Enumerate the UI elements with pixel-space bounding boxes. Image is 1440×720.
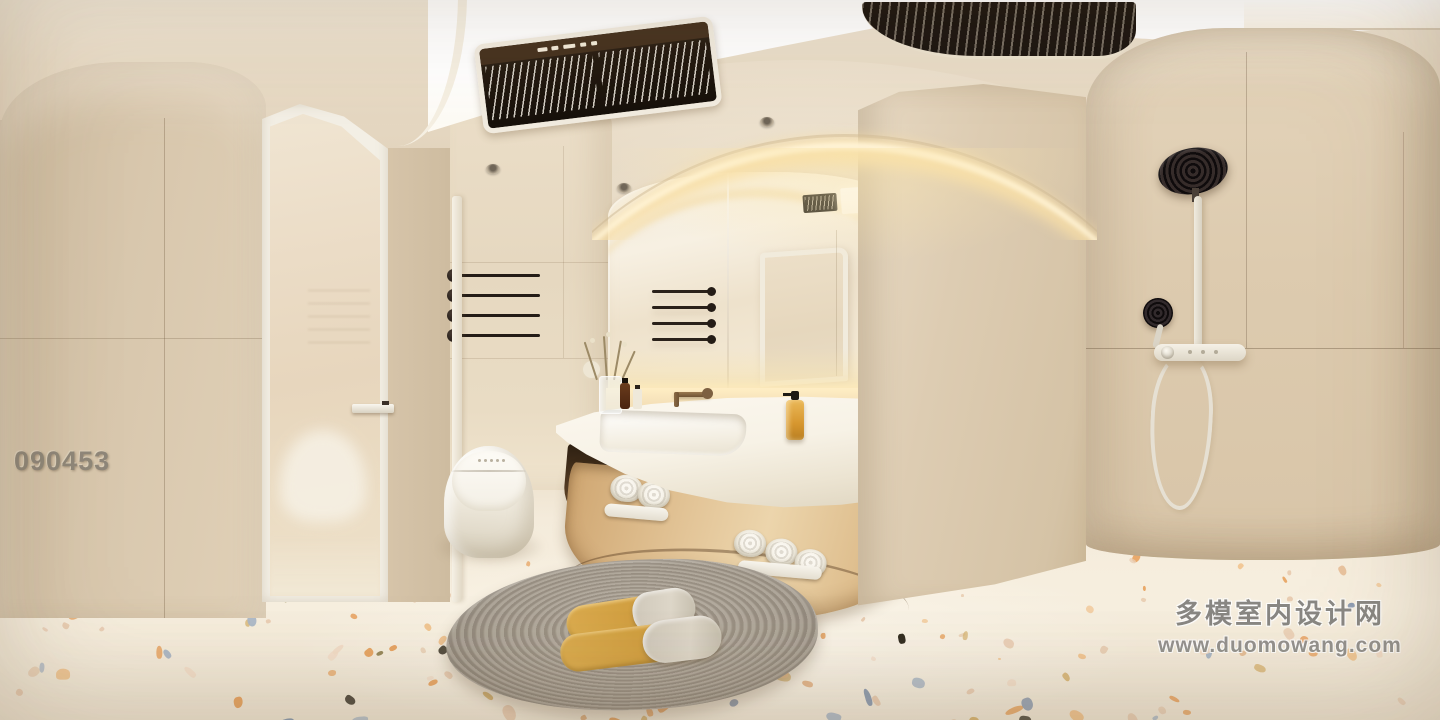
terrazzo-chip (233, 696, 244, 708)
display-glyph (591, 41, 597, 46)
towel-bar (449, 334, 540, 337)
shower-button (1201, 350, 1205, 354)
terrazzo-chip (38, 662, 44, 672)
wall-beside-door (388, 148, 450, 602)
wall-seam (164, 118, 165, 618)
terrazzo-chip (1376, 582, 1382, 588)
toilet-buttons (478, 459, 505, 462)
terrazzo-chip (1168, 695, 1179, 703)
small-bottle (633, 389, 642, 409)
terrazzo-chip (278, 716, 296, 720)
door-handle (352, 404, 394, 413)
terrazzo-chip (56, 669, 70, 680)
faucet-escutcheon (702, 388, 713, 399)
terrazzo-chip (1157, 705, 1166, 715)
wall-seam (1403, 132, 1404, 348)
display-glyph (580, 42, 586, 47)
vent-grille (485, 54, 599, 121)
tile-seam (450, 358, 612, 359)
terrazzo-chip (1396, 697, 1406, 707)
watermark-site-url: www.duomowang.com (1150, 633, 1410, 658)
terrazzo-chip (156, 646, 162, 659)
left-wall-panel: 090453 (0, 62, 266, 618)
terrazzo-chip (1183, 709, 1192, 714)
terrazzo-chip (1151, 715, 1159, 720)
flower-leaf (590, 338, 595, 343)
vent-grille (598, 40, 712, 107)
vent-grille (862, 2, 1136, 56)
terrazzo-chip (162, 648, 173, 660)
flower-leaf (622, 342, 627, 347)
terrazzo-chip (351, 716, 368, 720)
terrazzo-chip (15, 688, 24, 697)
towel-bar (449, 294, 540, 297)
terrazzo-chip (1237, 562, 1245, 570)
watermark-site-name: 多模室内设计网 (1150, 598, 1410, 630)
terrazzo-chip (1143, 586, 1146, 591)
tile-seam (563, 146, 564, 358)
mirror-reflection-towel-bar (652, 338, 714, 341)
tile-seam (450, 262, 612, 263)
terrazzo-chip (1007, 679, 1016, 687)
bathroom-panorama: 090453 (0, 0, 1440, 720)
terrazzo-chip (265, 619, 271, 625)
terrazzo-chip (1288, 570, 1292, 575)
flower-leaf (606, 332, 611, 337)
bathtub-silhouette (280, 430, 366, 522)
glass-reflection-lines (308, 290, 370, 346)
terrazzo-chip (1126, 711, 1140, 720)
photo-id-label: 090453 (14, 446, 110, 477)
display-glyph (551, 46, 558, 51)
recessed-downlight (486, 164, 500, 174)
toilet-lid-seam (452, 470, 526, 472)
sink-basin (599, 409, 746, 456)
shower-button (1188, 350, 1192, 354)
glass-vase (599, 376, 622, 414)
shower-slide-bar (1194, 196, 1202, 356)
amber-bottle (620, 383, 630, 409)
towel-bar (449, 274, 540, 277)
wall-seam (0, 338, 266, 339)
terrazzo-chip (1337, 564, 1347, 575)
watermark: 多模室内设计网 www.duomowang.com (1150, 598, 1410, 659)
soap-pump-bottle (786, 400, 804, 440)
terrazzo-chip (939, 633, 945, 639)
terrazzo-chip (328, 669, 336, 675)
luminous-ceiling-corner (1244, 0, 1440, 30)
cove-wall-wash (600, 148, 1100, 268)
mirror-reflection-towel-bar (652, 290, 714, 293)
glass-floor-hint (270, 534, 380, 596)
shower-control-shelf (1154, 344, 1246, 361)
mirror-reflection-towel-bar (652, 306, 714, 309)
terrazzo-chip (61, 622, 70, 631)
terrazzo-chip (98, 625, 105, 632)
frosted-door-glass (270, 112, 380, 596)
terrazzo-chip (1018, 715, 1031, 720)
terrazzo-chip (1253, 663, 1267, 674)
terrazzo-chip (182, 665, 196, 679)
wall-seam (1246, 52, 1247, 348)
terrazzo-chip (1140, 597, 1146, 602)
display-glyph (537, 47, 547, 52)
terrazzo-chip (42, 626, 49, 632)
wall-seam (1086, 348, 1440, 349)
terrazzo-chip (962, 631, 967, 640)
towel-bar (449, 314, 540, 317)
return-air-vent (862, 2, 1136, 59)
recessed-downlight (760, 117, 774, 127)
faucet-spout (674, 392, 679, 407)
shower-wall (1086, 28, 1440, 560)
display-glyph (563, 44, 575, 49)
terrazzo-chip (1281, 575, 1288, 583)
terrazzo-chip (1067, 708, 1085, 720)
shower-button (1214, 350, 1218, 354)
mirror-reflection-towel-bar (652, 322, 714, 325)
shower-knob (1161, 346, 1174, 359)
